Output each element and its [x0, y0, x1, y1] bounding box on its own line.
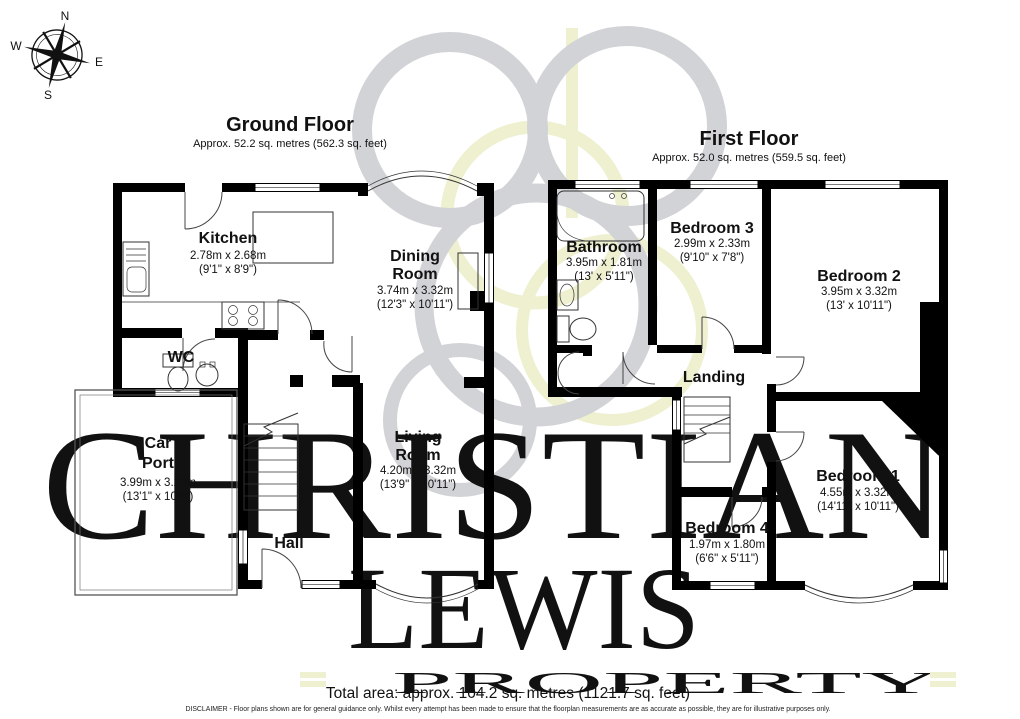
living-imperial: (13'9" x 10'11"): [380, 479, 456, 491]
bedroom2-name: Bedroom 2: [817, 268, 901, 285]
room-label-bedroom1: Bedroom 1 4.55m x 3.32m (14'11" x 10'11"…: [816, 468, 900, 513]
living-name2: Room: [395, 447, 440, 464]
bedroom3-metric: 2.99m x 2.33m: [674, 238, 750, 250]
compass-s-label: S: [44, 88, 52, 102]
total-area-text: Total area: approx. 104.2 sq. metres (11…: [326, 685, 690, 702]
compass-w-label: W: [10, 39, 22, 53]
kitchen-metric: 2.78m x 2.68m: [190, 250, 266, 262]
bedroom4-imperial: (6'6" x 5'11"): [695, 553, 759, 565]
dining-metric: 3.74m x 3.32m: [377, 285, 453, 297]
first-floor-title: First Floor: [700, 128, 799, 150]
kitchen-sink-icon: [123, 242, 149, 296]
living-metric: 4.20m x 3.32m: [380, 465, 456, 477]
room-label-bedroom4: Bedroom 4 1.97m x 1.80m (6'6" x 5'11"): [685, 520, 769, 565]
kitchen-hob-icon: [122, 302, 300, 329]
carport-name2: Port: [142, 455, 175, 472]
kitchen-name: Kitchen: [199, 230, 258, 247]
watermark-word-lewis: LEWIS: [348, 543, 700, 674]
first-floor-header: First Floor Approx. 52.0 sq. metres (559…: [652, 128, 846, 164]
bedroom1-metric: 4.55m x 3.32m: [820, 487, 896, 499]
ground-floor-area: Approx. 52.2 sq. metres (562.3 sq. feet): [193, 138, 387, 150]
room-label-bedroom3: Bedroom 3 2.99m x 2.33m (9'10" x 7'8"): [670, 220, 754, 264]
living-name1: Living: [394, 429, 441, 446]
wc-basin-icon: [196, 362, 218, 386]
carport-imperial: (13'1" x 10'6"): [123, 491, 194, 503]
landing-name: Landing: [683, 369, 745, 386]
bathroom-name: Bathroom: [566, 239, 642, 256]
room-label-landing: Landing: [683, 369, 745, 386]
room-label-kitchen: Kitchen 2.78m x 2.68m (9'1" x 8'9"): [190, 230, 266, 276]
bedroom3-imperial: (9'10" x 7'8"): [680, 252, 745, 264]
carport-name1: Car: [145, 435, 172, 452]
room-label-bathroom: Bathroom 3.95m x 1.81m (13' x 5'11"): [566, 239, 642, 283]
hall-name: Hall: [274, 535, 303, 552]
room-label-bedroom2: Bedroom 2 3.95m x 3.32m (13' x 10'11"): [817, 268, 901, 312]
ground-floor-title: Ground Floor: [226, 114, 354, 136]
room-label-wc: WC: [168, 349, 195, 366]
bathroom-toilet-icon: [557, 316, 596, 342]
wc-name: WC: [168, 349, 195, 366]
dining-name2: Room: [392, 266, 437, 283]
bedroom2-imperial: (13' x 10'11"): [826, 300, 892, 312]
disclaimer-text: DISCLAIMER - Floor plans shown are for g…: [185, 706, 830, 713]
kitchen-imperial: (9'1" x 8'9"): [199, 264, 257, 276]
bedroom1-name: Bedroom 1: [816, 468, 900, 485]
bedroom3-name: Bedroom 3: [670, 220, 754, 237]
compass-n-label: N: [61, 9, 70, 23]
floorplan-image: CHRISTIAN LEWIS PROPERTY N S E W: [0, 0, 1020, 719]
first-floor-area: Approx. 52.0 sq. metres (559.5 sq. feet): [652, 152, 846, 164]
bedroom4-metric: 1.97m x 1.80m: [689, 539, 765, 551]
dining-name1: Dining: [390, 248, 440, 265]
bathroom-imperial: (13' x 5'11"): [574, 271, 634, 283]
bedroom1-imperial: (14'11" x 10'11"): [817, 501, 899, 513]
carport-metric: 3.99m x 3.20m: [120, 477, 196, 489]
compass-e-label: E: [95, 55, 103, 69]
compass-rose-icon: N S E W: [10, 9, 103, 102]
floorplan-page: CHRISTIAN LEWIS PROPERTY N S E W: [0, 0, 1020, 719]
room-label-hall: Hall: [274, 535, 303, 552]
dining-imperial: (12'3" x 10'11"): [377, 299, 453, 311]
bedroom4-name: Bedroom 4: [685, 520, 769, 537]
bathroom-metric: 3.95m x 1.81m: [566, 257, 642, 269]
bedroom2-metric: 3.95m x 3.32m: [821, 286, 897, 298]
bay-window-bedroom1: [805, 585, 913, 603]
